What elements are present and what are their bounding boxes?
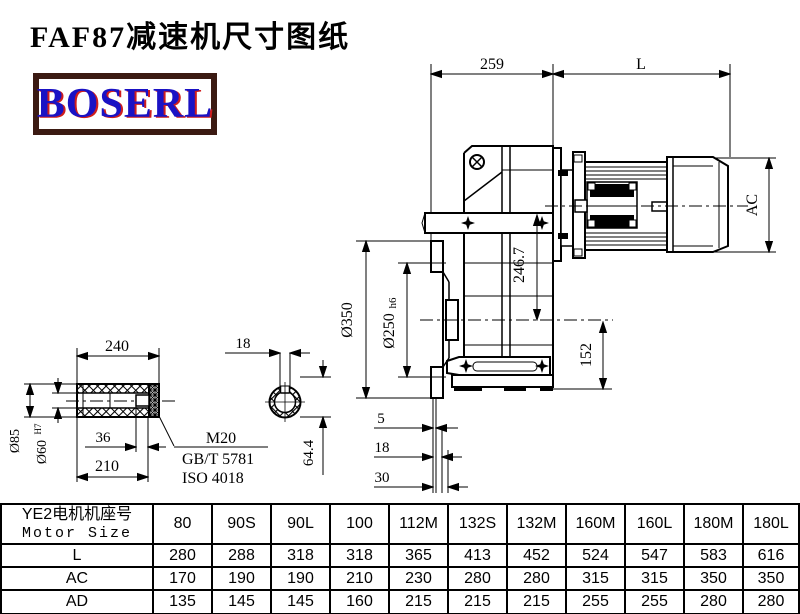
col-header: 100 (330, 504, 389, 544)
vent-screw-icon (470, 155, 484, 169)
cell: 288 (212, 544, 271, 567)
motor (553, 148, 728, 261)
col-header: 160L (625, 504, 684, 544)
cell: 315 (566, 567, 625, 590)
label-standard-iso: ISO 4018 (182, 470, 244, 487)
dim-offset-18: 18 (375, 440, 390, 456)
dim-pilot-tolerance: h6 (387, 297, 399, 309)
cell: 215 (389, 590, 448, 614)
dim-offset-5: 5 (377, 411, 385, 427)
cell: 452 (507, 544, 566, 567)
cell: 547 (625, 544, 684, 567)
cell: 315 (625, 567, 684, 590)
cell: 190 (271, 567, 330, 590)
cell: 145 (271, 590, 330, 614)
dim-210: 210 (95, 458, 119, 475)
col-header: 112M (389, 504, 448, 544)
dim-259: 259 (480, 56, 504, 73)
cell: 215 (448, 590, 507, 614)
header-motor-size: YE2电机机座号 Motor Size (1, 504, 153, 544)
hollow-shaft-detail: 240 Ø85 Ø60 H7 36 (8, 338, 268, 487)
row-label: AC (1, 567, 153, 590)
dim-flange-od: Ø350 (339, 302, 356, 338)
cell: 350 (743, 567, 799, 590)
col-header: 180L (743, 504, 799, 544)
cell: 318 (271, 544, 330, 567)
header-motor-size-cn: YE2电机机座号 (2, 506, 152, 524)
flange-dimensions: Ø350 Ø250 h6 246.7 152 (339, 215, 612, 493)
cell: 255 (566, 590, 625, 614)
col-header: 132M (507, 504, 566, 544)
dim-246-7: 246.7 (511, 247, 528, 283)
cell: 280 (448, 567, 507, 590)
cell: 350 (684, 567, 743, 590)
col-header: 90S (212, 504, 271, 544)
cell: 135 (153, 590, 212, 614)
cell: 583 (684, 544, 743, 567)
col-header: 180M (684, 504, 743, 544)
cell: 365 (389, 544, 448, 567)
dim-shaft-length-240: 240 (105, 338, 129, 355)
col-header: 132S (448, 504, 507, 544)
col-header: 80 (153, 504, 212, 544)
cell: 616 (743, 544, 799, 567)
col-header: 160M (566, 504, 625, 544)
motor-stator-window (587, 182, 637, 228)
cell: 255 (625, 590, 684, 614)
cell: 318 (330, 544, 389, 567)
dim-bore-tolerance-H7: H7 (33, 423, 43, 434)
label-thread-M20: M20 (206, 430, 236, 447)
cell: 524 (566, 544, 625, 567)
dim-36: 36 (96, 430, 112, 446)
label-standard-gb: GB/T 5781 (182, 451, 254, 468)
cell: 230 (389, 567, 448, 590)
cell: 145 (212, 590, 271, 614)
cell: 215 (507, 590, 566, 614)
row-label: AD (1, 590, 153, 614)
col-header: 90L (271, 504, 330, 544)
cell: 280 (153, 544, 212, 567)
m20-bolt (136, 395, 149, 406)
motor-size-table: YE2电机机座号 Motor Size 80 90S 90L 100 112M … (0, 503, 800, 614)
cell: 280 (684, 590, 743, 614)
table-row-L: L 280 288 318 318 365 413 452 524 547 58… (1, 544, 799, 567)
dim-shaft-od-85: Ø85 (8, 429, 23, 453)
table-row-AC: AC 170 190 190 210 230 280 280 315 315 3… (1, 567, 799, 590)
cell: 280 (743, 590, 799, 614)
cell: 210 (330, 567, 389, 590)
dim-keyway-64-4: 64.4 (301, 439, 317, 466)
drawing-page: FAF87减速机尺寸图纸 BOSERL (0, 0, 800, 614)
dim-keyway-width-18: 18 (236, 336, 251, 352)
cell: 280 (507, 567, 566, 590)
header-motor-size-en: Motor Size (2, 525, 152, 542)
table-row-AD: AD 135 145 145 160 215 215 215 255 255 2… (1, 590, 799, 614)
dim-152: 152 (578, 343, 595, 367)
table-header-row: YE2电机机座号 Motor Size 80 90S 90L 100 112M … (1, 504, 799, 544)
dim-offset-30: 30 (375, 470, 390, 486)
row-label: L (1, 544, 153, 567)
dim-motor-diameter-AC: AC (744, 194, 761, 216)
dim-pilot-diameter: Ø250 (381, 313, 398, 349)
cell: 190 (212, 567, 271, 590)
cell: 170 (153, 567, 212, 590)
cell: 413 (448, 544, 507, 567)
cell: 160 (330, 590, 389, 614)
dim-bore-60: Ø60 (35, 440, 50, 464)
dim-motor-length-L: L (636, 56, 646, 73)
